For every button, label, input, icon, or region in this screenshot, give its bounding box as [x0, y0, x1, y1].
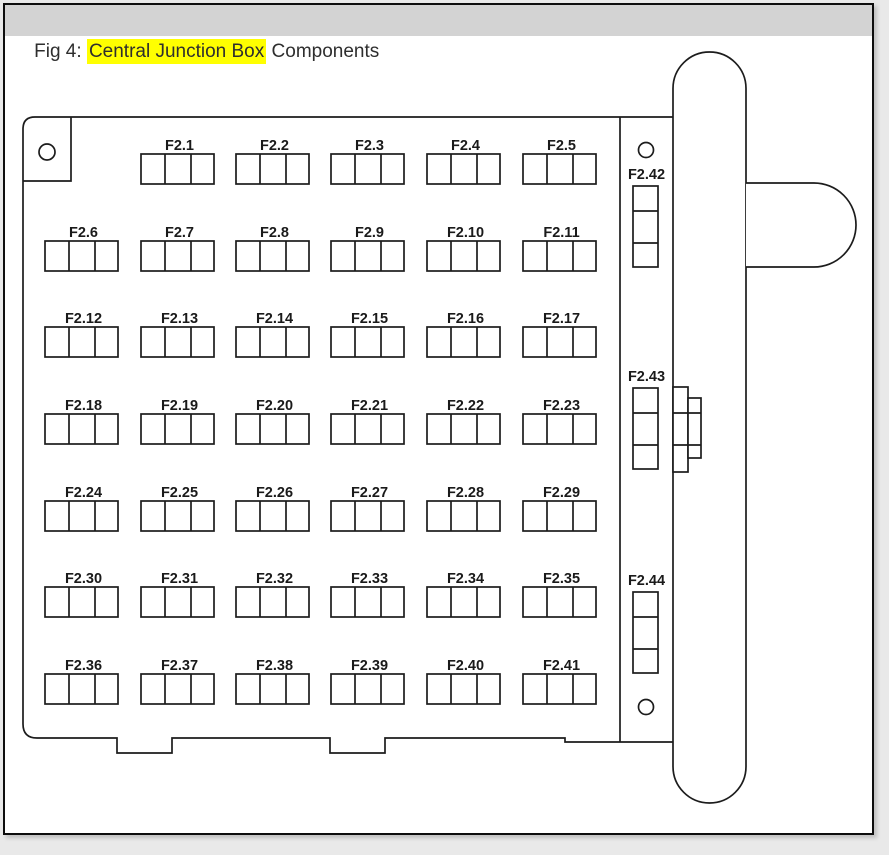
fuse-body [236, 501, 309, 531]
fuse-label-F2.5: F2.5 [547, 138, 576, 154]
fuse-cell-dividers [165, 414, 191, 444]
fuse-cell-dividers [451, 241, 477, 271]
fuse-body [331, 241, 404, 271]
fuse-label-F2.37: F2.37 [161, 658, 198, 674]
fuse-cell-dividers [355, 587, 381, 617]
fuse-body [45, 674, 118, 704]
fuse-label-F2.9: F2.9 [355, 225, 384, 241]
fuse-body [523, 587, 596, 617]
fuse-body [141, 501, 214, 531]
fuse-body [236, 587, 309, 617]
fuse-cell-dividers [547, 241, 573, 271]
fuse-body [331, 501, 404, 531]
fuse-F2.10: F2.10 [427, 225, 500, 271]
fuse-body [45, 587, 118, 617]
fuse-cell-dividers [451, 587, 477, 617]
fuse-body [141, 241, 214, 271]
fuse-cell-dividers [633, 211, 658, 243]
fuse-F2.15: F2.15 [331, 311, 404, 357]
fuse-body [45, 241, 118, 271]
fuse-label-F2.18: F2.18 [65, 398, 102, 414]
fuse-body [427, 414, 500, 444]
fuse-label-F2.19: F2.19 [161, 398, 198, 414]
fuse-body [236, 154, 309, 184]
fuse-body [427, 587, 500, 617]
fuse-label-F2.17: F2.17 [543, 311, 580, 327]
fuse-cell-dividers [69, 674, 95, 704]
fuse-cell-dividers [165, 327, 191, 357]
fuse-body [523, 327, 596, 357]
fuse-F2.11: F2.11 [523, 225, 596, 271]
fuse-F2.32: F2.32 [236, 571, 309, 617]
fuse-label-F2.41: F2.41 [543, 658, 580, 674]
fuse-body [236, 414, 309, 444]
fuse-label-F2.7: F2.7 [165, 225, 194, 241]
fuse-body [331, 154, 404, 184]
fuse-F2.16: F2.16 [427, 311, 500, 357]
fuse-cell-dividers [355, 414, 381, 444]
fuse-label-F2.39: F2.39 [351, 658, 388, 674]
side-screw-hole-bottom-icon [639, 700, 654, 715]
fuse-F2.17: F2.17 [523, 311, 596, 357]
fuse-label-F2.25: F2.25 [161, 485, 198, 501]
fuse-F2.26: F2.26 [236, 485, 309, 531]
fuse-cell-dividers [451, 414, 477, 444]
fuse-body [45, 327, 118, 357]
fuse-body [427, 674, 500, 704]
fuse-body [633, 388, 658, 469]
fuse-body [523, 414, 596, 444]
fuse-label-F2.32: F2.32 [256, 571, 293, 587]
fuse-body [331, 414, 404, 444]
fuse-label-F2.8: F2.8 [260, 225, 289, 241]
fuse-label-F2.44: F2.44 [628, 573, 665, 589]
fuse-F2.5: F2.5 [523, 138, 596, 184]
fuse-cell-dividers [260, 674, 286, 704]
fuse-label-F2.36: F2.36 [65, 658, 102, 674]
fuse-cell-dividers [633, 413, 658, 445]
fuse-cell-dividers [260, 501, 286, 531]
fuse-body [236, 674, 309, 704]
fuse-body [236, 241, 309, 271]
fuse-label-F2.4: F2.4 [451, 138, 480, 154]
fuse-label-F2.6: F2.6 [69, 225, 98, 241]
fuse-F2.9: F2.9 [331, 225, 404, 271]
fuse-cell-dividers [260, 587, 286, 617]
fuse-cell-dividers [165, 587, 191, 617]
fuse-cell-dividers [260, 327, 286, 357]
fuse-cell-dividers [451, 327, 477, 357]
fuse-cell-dividers [355, 674, 381, 704]
fuse-body [633, 592, 658, 673]
fuse-label-F2.28: F2.28 [447, 485, 484, 501]
fuse-F2.41: F2.41 [523, 658, 596, 704]
fuse-F2.23: F2.23 [523, 398, 596, 444]
fuse-cell-dividers [451, 674, 477, 704]
fuse-label-F2.31: F2.31 [161, 571, 198, 587]
fuse-label-F2.14: F2.14 [256, 311, 293, 327]
fuse-cell-dividers [547, 154, 573, 184]
fuse-body [427, 241, 500, 271]
fuse-F2.24: F2.24 [45, 485, 118, 531]
fuse-label-F2.38: F2.38 [256, 658, 293, 674]
fuse-body [45, 414, 118, 444]
fuse-cell-dividers [451, 154, 477, 184]
fuse-F2.4: F2.4 [427, 138, 500, 184]
fuse-body [45, 501, 118, 531]
fuse-body [523, 241, 596, 271]
fuse-body [141, 414, 214, 444]
fuse-cell-dividers [165, 154, 191, 184]
fuse-body [331, 327, 404, 357]
fuse-body [331, 674, 404, 704]
fuse-F2.34: F2.34 [427, 571, 500, 617]
fuse-body [633, 186, 658, 267]
fuse-cell-dividers [547, 587, 573, 617]
fuse-body [427, 154, 500, 184]
fuse-label-F2.40: F2.40 [447, 658, 484, 674]
fuse-label-F2.3: F2.3 [355, 138, 384, 154]
fuse-F2.30: F2.30 [45, 571, 118, 617]
screenshot-root: { "header": { "prefix": "Fig 4: ", "high… [0, 0, 889, 855]
fuse-F2.20: F2.20 [236, 398, 309, 444]
fuse-cell-dividers [355, 327, 381, 357]
fuse-label-F2.26: F2.26 [256, 485, 293, 501]
fuse-F2.8: F2.8 [236, 225, 309, 271]
fuse-label-F2.20: F2.20 [256, 398, 293, 414]
fuse-label-F2.1: F2.1 [165, 138, 194, 154]
fuse-F2.42: F2.42 [628, 167, 665, 267]
fuse-F2.25: F2.25 [141, 485, 214, 531]
corner-screw-hole-icon [39, 144, 55, 160]
fuse-body [331, 587, 404, 617]
fuse-label-F2.12: F2.12 [65, 311, 102, 327]
fuse-label-F2.33: F2.33 [351, 571, 388, 587]
fuse-F2.39: F2.39 [331, 658, 404, 704]
fuse-F2.22: F2.22 [427, 398, 500, 444]
fuse-body [141, 674, 214, 704]
fuse-label-F2.13: F2.13 [161, 311, 198, 327]
fuse-body [141, 587, 214, 617]
fuse-cell-dividers [260, 241, 286, 271]
fuse-body [236, 327, 309, 357]
fuse-label-F2.27: F2.27 [351, 485, 388, 501]
fuse-cell-dividers [69, 241, 95, 271]
side-screw-hole-top-icon [639, 143, 654, 158]
fuse-F2.18: F2.18 [45, 398, 118, 444]
fuse-F2.27: F2.27 [331, 485, 404, 531]
fuse-cell-dividers [633, 617, 658, 649]
fuse-cell-dividers [69, 327, 95, 357]
fuse-F2.38: F2.38 [236, 658, 309, 704]
fuse-F2.44: F2.44 [628, 573, 665, 673]
fuse-body [523, 154, 596, 184]
fuse-label-F2.16: F2.16 [447, 311, 484, 327]
fuse-label-F2.34: F2.34 [447, 571, 484, 587]
fuse-body [523, 501, 596, 531]
connector-clip-inner [673, 387, 688, 472]
fuse-F2.29: F2.29 [523, 485, 596, 531]
fuse-F2.2: F2.2 [236, 138, 309, 184]
fuse-F2.35: F2.35 [523, 571, 596, 617]
fuse-F2.37: F2.37 [141, 658, 214, 704]
fuse-cell-dividers [165, 241, 191, 271]
corner-compartment [23, 117, 71, 181]
fuse-cell-dividers [355, 241, 381, 271]
fuse-cell-dividers [69, 501, 95, 531]
fuse-cell-dividers [165, 674, 191, 704]
figure-title-bar: Fig 4: Central Junction Box Components [5, 5, 872, 36]
fuse-label-F2.10: F2.10 [447, 225, 484, 241]
fuse-F2.43: F2.43 [628, 369, 665, 469]
fuse-label-F2.23: F2.23 [543, 398, 580, 414]
fuse-cell-dividers [451, 501, 477, 531]
fuse-label-F2.15: F2.15 [351, 311, 388, 327]
junction-box-diagram: F2.1F2.2F2.3F2.4F2.5F2.6F2.7F2.8F2.9F2.1… [5, 36, 871, 832]
connector-clip-outer [688, 398, 701, 458]
fuse-cell-dividers [547, 327, 573, 357]
fuse-body [523, 674, 596, 704]
fuse-cell-dividers [355, 154, 381, 184]
fuse-body [141, 154, 214, 184]
fuse-label-F2.42: F2.42 [628, 167, 665, 183]
fuse-label-F2.35: F2.35 [543, 571, 580, 587]
fuse-cell-dividers [165, 501, 191, 531]
fuse-label-F2.11: F2.11 [543, 225, 579, 241]
fuse-cell-dividers [547, 501, 573, 531]
fuse-label-F2.30: F2.30 [65, 571, 102, 587]
fuse-cell-dividers [260, 414, 286, 444]
fuse-cell-dividers [355, 501, 381, 531]
fuse-label-F2.2: F2.2 [260, 138, 289, 154]
fuse-label-F2.29: F2.29 [543, 485, 580, 501]
fuse-label-F2.22: F2.22 [447, 398, 484, 414]
fuse-body [427, 327, 500, 357]
fuse-F2.40: F2.40 [427, 658, 500, 704]
fuse-body [427, 501, 500, 531]
fuse-F2.19: F2.19 [141, 398, 214, 444]
fuse-label-F2.43: F2.43 [628, 369, 665, 385]
fuse-body [141, 327, 214, 357]
figure-panel: Fig 4: Central Junction Box Components F… [3, 3, 874, 835]
fuse-F2.31: F2.31 [141, 571, 214, 617]
fuse-F2.1: F2.1 [141, 138, 214, 184]
fuse-F2.14: F2.14 [236, 311, 309, 357]
fuse-F2.13: F2.13 [141, 311, 214, 357]
fuse-cell-dividers [69, 414, 95, 444]
fuse-F2.36: F2.36 [45, 658, 118, 704]
fuse-cell-dividers [69, 587, 95, 617]
fuse-F2.21: F2.21 [331, 398, 404, 444]
fuse-F2.12: F2.12 [45, 311, 118, 357]
fuse-cell-dividers [260, 154, 286, 184]
fuse-F2.3: F2.3 [331, 138, 404, 184]
fuse-label-F2.21: F2.21 [351, 398, 388, 414]
fuse-F2.33: F2.33 [331, 571, 404, 617]
fuse-F2.28: F2.28 [427, 485, 500, 531]
fuse-cell-dividers [547, 674, 573, 704]
fuse-cell-dividers [547, 414, 573, 444]
bracket-tab [746, 183, 856, 267]
fuse-label-F2.24: F2.24 [65, 485, 102, 501]
fuse-F2.7: F2.7 [141, 225, 214, 271]
fuse-F2.6: F2.6 [45, 225, 118, 271]
